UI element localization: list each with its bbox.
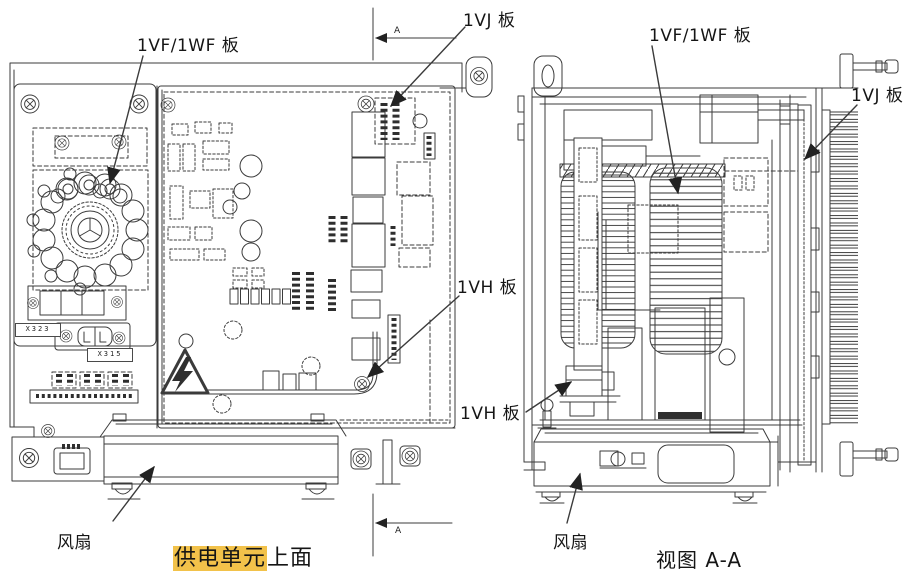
- mounting-tab: [534, 56, 562, 96]
- label-fan-left: 风扇: [57, 528, 92, 553]
- leader-arrows-left-view: [110, 27, 465, 521]
- section-letter-top: A: [394, 26, 400, 36]
- caption-power-unit-top: 供电单元上面: [173, 540, 313, 572]
- warning-triangle: [162, 350, 208, 393]
- label-1vf-1wf-board-right: 1VF/1WF 板: [649, 21, 751, 46]
- heatsink-fins: [830, 110, 858, 424]
- vj-connector-cluster: [358, 96, 435, 159]
- label-1vj-board-right: 1VJ 板: [851, 81, 903, 106]
- pin-header-rows: [30, 372, 138, 403]
- leader-fan: [113, 467, 154, 521]
- left-view-drawing: [10, 8, 492, 556]
- coil-1vf-target: [650, 168, 722, 354]
- leader-fan-right: [567, 474, 580, 523]
- leader-1vh-board: [368, 296, 459, 377]
- leader-1vj-board: [391, 27, 465, 106]
- power-supply-unit-drawing-page: 1VF/1WF 板 1VJ 板 1VH 板 风扇 1VF/1WF 板 1VJ 板…: [0, 0, 914, 582]
- main-board-panel: [158, 86, 455, 428]
- dashed-zones: [724, 158, 798, 252]
- section-marker-bottom: [373, 494, 452, 556]
- connector-label-x323: X323: [15, 323, 61, 337]
- label-1vh-board-right: 1VH 板: [460, 399, 520, 424]
- label-1vj-board-left: 1VJ 板: [463, 6, 515, 31]
- heatsink: [816, 88, 858, 472]
- caption-view-a-a: 视图 A-A: [656, 544, 742, 573]
- right-view-drawing: [518, 46, 898, 523]
- fan-unit: [100, 414, 420, 499]
- leader-1vh-board-right: [526, 382, 571, 412]
- stud-bottom: [840, 442, 898, 476]
- leader-1vf-board: [110, 56, 143, 183]
- label-fan-right: 风扇: [553, 528, 588, 553]
- fan-unit-side: [534, 429, 816, 503]
- connector-label-x315: X315: [87, 348, 133, 362]
- label-1vf-1wf-board-left: 1VF/1WF 板: [137, 31, 239, 56]
- label-1vh-board-left: 1VH 板: [457, 273, 517, 298]
- section-letter-bottom: A: [395, 526, 401, 536]
- terminal-block: [28, 286, 127, 320]
- chassis-bottom-left: [10, 425, 104, 482]
- toroidal-coil: [27, 168, 148, 295]
- caption-plain-part: 上面: [267, 546, 313, 571]
- caption-highlighted-part: 供电单元: [173, 546, 267, 571]
- section-marker-top: [373, 8, 456, 60]
- top-bracket: [700, 95, 804, 143]
